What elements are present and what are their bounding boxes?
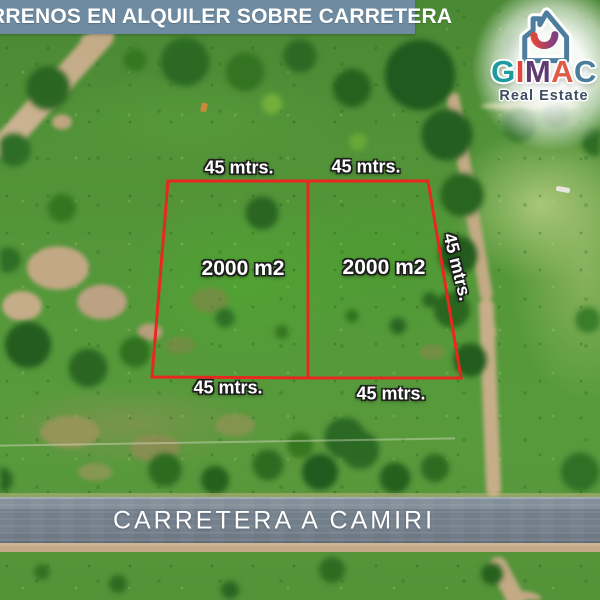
label-left-plot-area: 2000 m2 [202,257,285,281]
gimac-logo: GIMAC Real Estate [472,2,600,110]
brand-subtitle: Real Estate [472,88,600,104]
road-name-label: CARRETERA A CAMIRI [113,507,435,536]
brand-letter: G [491,54,516,89]
label-right-plot-area: 2000 m2 [343,256,426,280]
label-right-plot-top-width: 45 mtrs. [331,157,400,178]
real-estate-ad: CARRETERA A CAMIRI 45 mtrs. 45 mtrs. 200… [0,0,600,600]
brand-letter: C [574,54,597,89]
label-left-plot-bottom-width: 45 mtrs. [193,378,262,399]
brand-letter: A [551,54,574,89]
label-right-plot-bottom-width: 45 mtrs. [356,384,425,405]
title-banner: TERRENOS EN ALQUILER SOBRE CARRETERA [0,0,415,34]
brand-name: GIMAC [472,56,600,87]
banner-title: TERRENOS EN ALQUILER SOBRE CARRETERA [0,5,452,29]
brand-letter: I [516,54,525,89]
brand-letter: M [525,54,551,89]
label-left-plot-top-width: 45 mtrs. [204,158,273,179]
